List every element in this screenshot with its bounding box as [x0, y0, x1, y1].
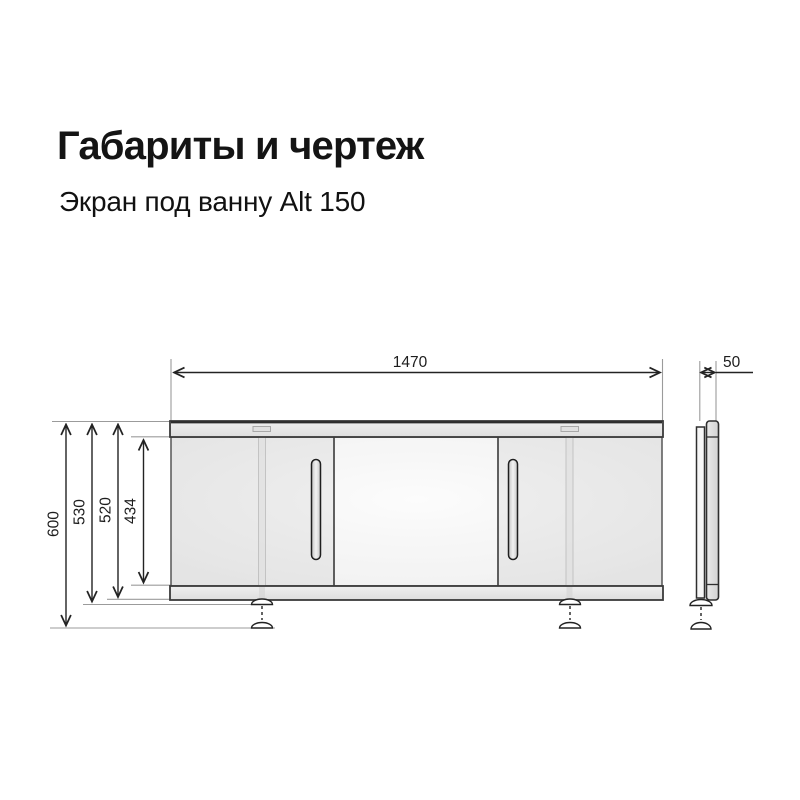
dim-label-530: 530: [72, 499, 89, 525]
center-door-panel: [335, 438, 498, 585]
leg-bolt-right: [566, 431, 573, 600]
adjustable-foot-right: [560, 599, 581, 628]
door-handle-left: [312, 460, 321, 560]
dim-label-434: 434: [123, 498, 140, 524]
side-profile-panel: [697, 427, 705, 598]
bolt-head-right: [561, 427, 579, 432]
dim-label-depth: 50: [723, 354, 741, 371]
bolt-through-rail-right: [567, 587, 573, 599]
technical-drawing: 1470 50 600 530 520 434: [0, 0, 800, 800]
adjustable-foot-left: [252, 599, 273, 628]
door-handle-right: [509, 460, 518, 560]
top-rail: [170, 421, 663, 437]
bolt-head-left: [253, 427, 271, 432]
adjustable-foot-side: [690, 600, 712, 629]
side-profile-rail: [707, 421, 719, 600]
left-door-panel: [172, 438, 333, 585]
leg-bolt-left: [259, 431, 266, 600]
bottom-rail: [170, 586, 663, 600]
bath-screen-front-view: [170, 421, 663, 628]
bolt-through-rail-left: [259, 587, 265, 599]
right-door-panel: [499, 438, 661, 585]
dim-label-520: 520: [98, 497, 115, 523]
dim-label-600: 600: [46, 511, 63, 537]
dim-label-width: 1470: [393, 354, 428, 371]
bath-screen-side-view: [690, 421, 719, 629]
